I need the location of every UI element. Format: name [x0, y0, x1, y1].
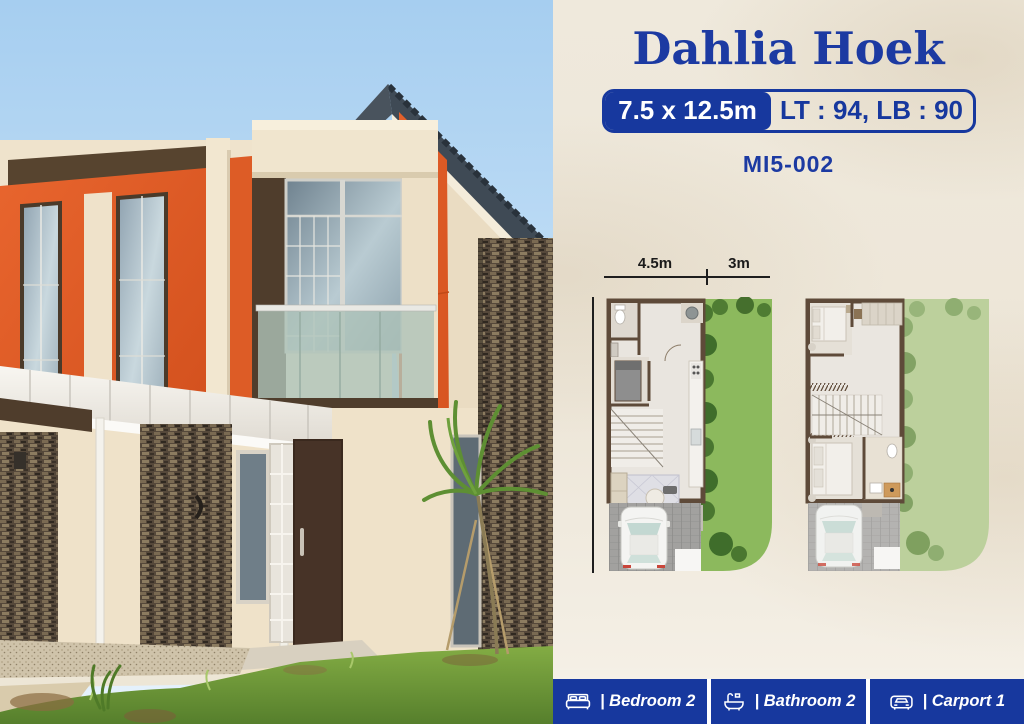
stairs: [812, 395, 882, 435]
basin: [686, 307, 698, 319]
toilet: [615, 310, 625, 324]
brochure-page: Dahlia Hoek 7.5 x 12.5m LT : 94, LB : 90…: [0, 0, 1024, 724]
car-icon: [889, 692, 914, 711]
bathroom: [864, 437, 902, 499]
spec-badge: 7.5 x 12.5m LT : 94, LB : 90: [602, 89, 976, 133]
void-hatch: [810, 383, 848, 391]
floor-plan-ground: [605, 297, 772, 573]
house-photo: [0, 0, 553, 724]
bedroom-upper: [808, 303, 852, 355]
kitchen-counter: [689, 361, 703, 487]
feature-bathroom: | Bathroom 2: [711, 679, 865, 724]
balcony: [256, 305, 438, 416]
floorplans: 4.5m 3m 12.5m: [583, 250, 1013, 580]
front-width-label: 4.5m: [638, 255, 672, 272]
center-box: [252, 120, 438, 416]
page-title: Dahlia Hoek: [553, 24, 1024, 74]
area-badge: LT : 94, LB : 90: [771, 92, 973, 130]
info-panel: Dahlia Hoek 7.5 x 12.5m LT : 94, LB : 90…: [553, 0, 1024, 724]
ground-window: [238, 452, 268, 602]
door-sidelight: [270, 444, 294, 642]
master-bedroom: [808, 436, 862, 502]
car: [816, 505, 862, 567]
feature-bar: | Bedroom 2 | Bathroom 2 | Carport 1: [553, 679, 1024, 724]
feature-label: | Bathroom 2: [755, 692, 856, 711]
floor-plan-upper: [804, 297, 989, 573]
house-photo-graphic: [0, 0, 553, 724]
feature-label: | Carport 1: [923, 692, 1006, 711]
bed-icon: [565, 692, 591, 711]
wall-lamp: [14, 452, 26, 469]
feature-carport: | Carport 1: [870, 679, 1024, 724]
stairs: [611, 409, 663, 467]
feature-bedroom: | Bedroom 2: [553, 679, 707, 724]
canopy-post-1: [96, 418, 104, 658]
stone-pillar-mid: [140, 424, 232, 670]
front-door: [294, 440, 342, 646]
stone-pillar-left: [0, 432, 58, 668]
garden-width-label: 3m: [728, 255, 750, 272]
unit-code: MI5-002: [553, 151, 1024, 178]
dimensions-badge: 7.5 x 12.5m: [605, 92, 771, 130]
feature-label: | Bedroom 2: [600, 692, 695, 711]
bath-icon: [722, 692, 746, 712]
car: [618, 507, 670, 569]
